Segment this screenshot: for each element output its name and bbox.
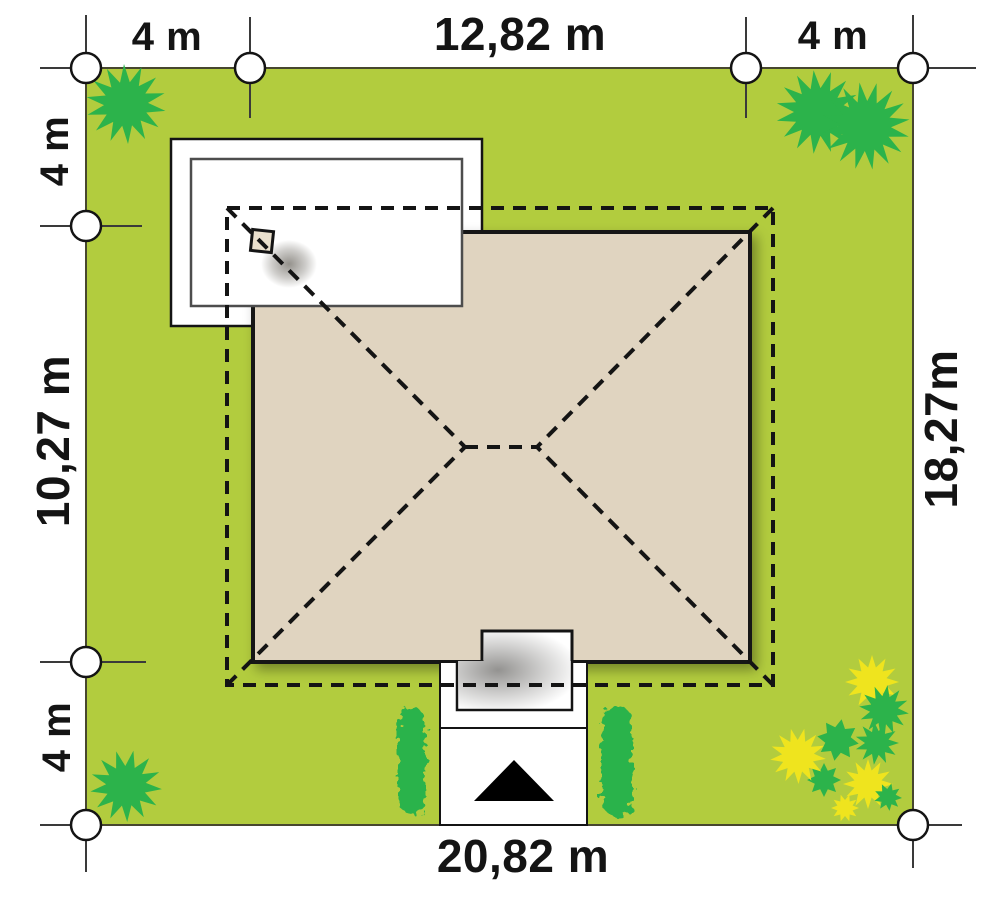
site-plan-drawing — [0, 0, 1000, 905]
dimension-node — [235, 53, 265, 83]
dimension-node — [898, 53, 928, 83]
hedge-left-shape — [398, 708, 426, 814]
hedge-left — [398, 708, 426, 814]
dimension-label-top-width: 12,82 m — [434, 11, 606, 57]
hedge-right-shape — [602, 706, 632, 816]
dimension-label-left-top: 4 m — [35, 116, 75, 186]
dimension-node — [71, 211, 101, 241]
dimension-label-left-bottom: 4 m — [37, 702, 77, 772]
dimension-node — [71, 647, 101, 677]
dimension-label-left-depth: 10,27 m — [30, 355, 76, 527]
dimension-node — [898, 810, 928, 840]
dimension-label-right-depth: 18,27m — [918, 349, 964, 508]
dimension-node — [71, 53, 101, 83]
site-plan-canvas: 4 m 12,82 m 4 m 4 m 10,27 m 4 m 18,27m 2… — [0, 0, 1000, 905]
dimension-node — [71, 810, 101, 840]
dimension-label-top-right: 4 m — [798, 16, 868, 56]
dimension-label-top-left: 4 m — [132, 17, 202, 57]
hedge-right — [602, 706, 632, 816]
terrace-inner-slab — [191, 159, 462, 306]
dimension-label-bottom-width: 20,82 m — [437, 833, 609, 879]
dimension-node — [731, 53, 761, 83]
